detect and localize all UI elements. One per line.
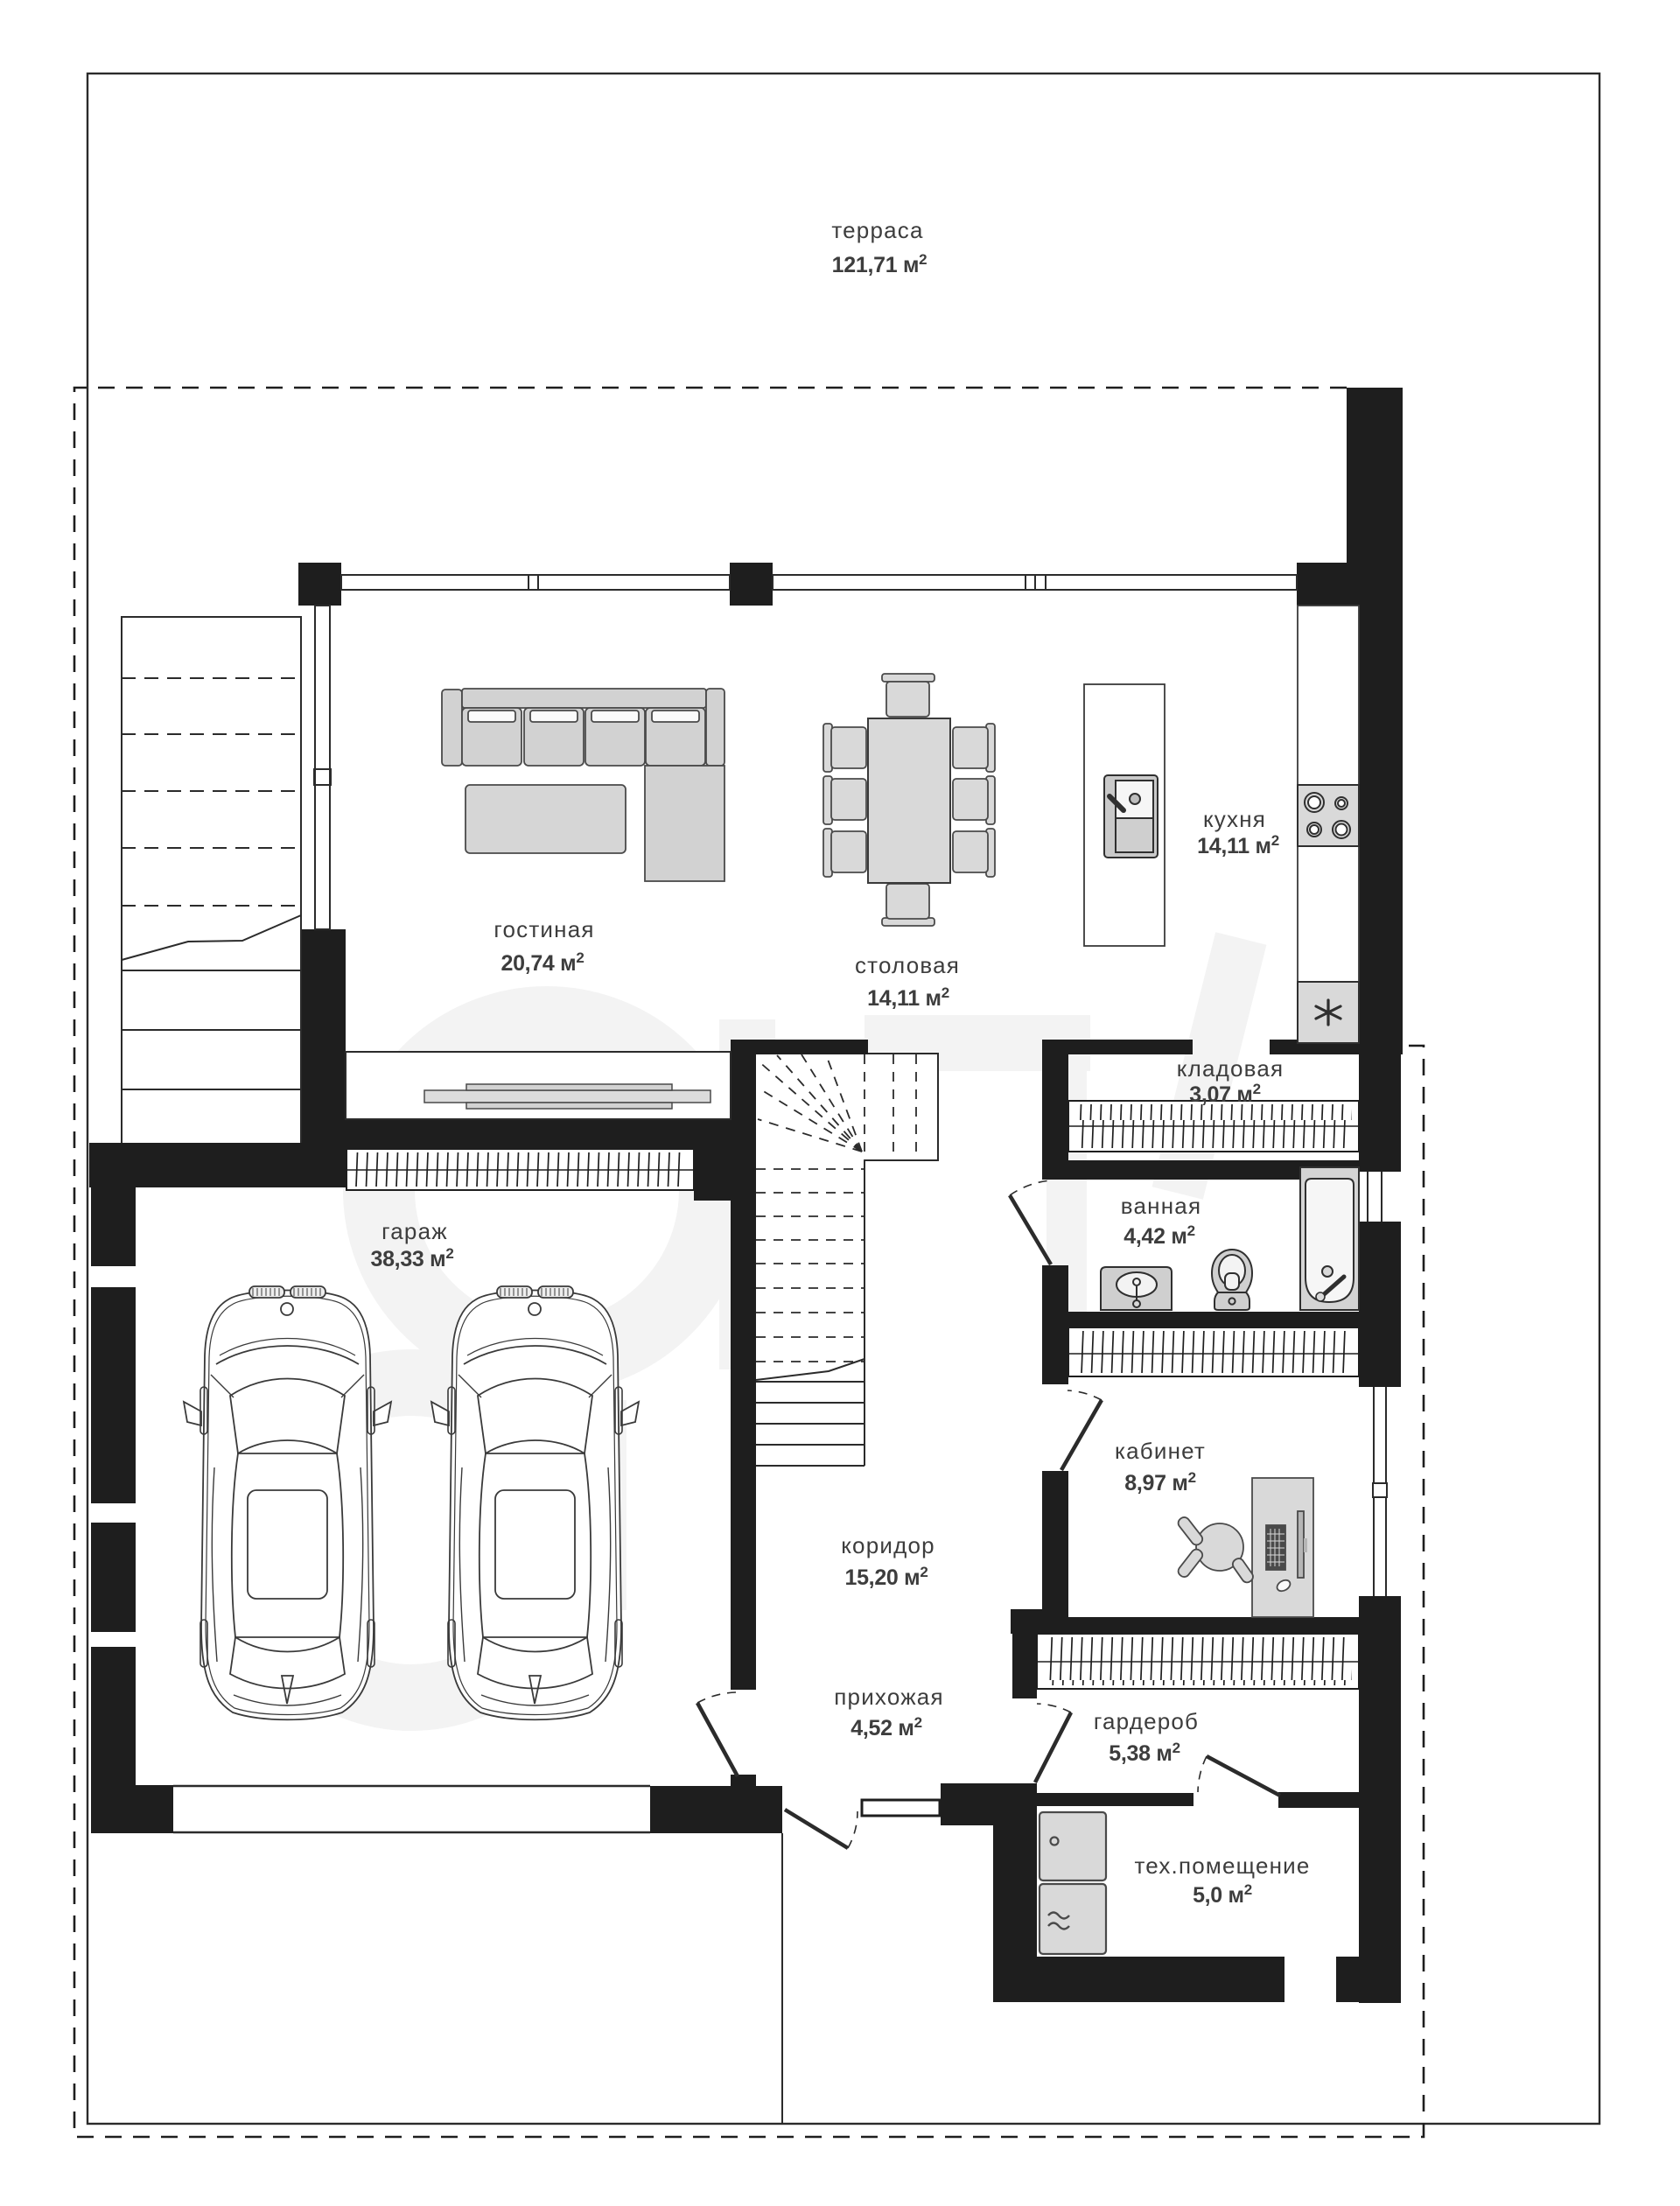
svg-text:4,42 м2: 4,42 м2 — [1123, 1222, 1194, 1249]
svg-text:столовая: столовая — [855, 952, 960, 978]
svg-text:тех.помещение: тех.помещение — [1134, 1852, 1310, 1879]
svg-text:4,52 м2: 4,52 м2 — [850, 1714, 921, 1740]
svg-text:кабинет: кабинет — [1115, 1438, 1206, 1464]
svg-text:прихожая: прихожая — [834, 1684, 943, 1710]
svg-text:5,0 м2: 5,0 м2 — [1193, 1881, 1252, 1908]
svg-text:14,11 м2: 14,11 м2 — [867, 984, 949, 1011]
svg-text:ванная: ванная — [1121, 1193, 1201, 1219]
svg-text:3,07 м2: 3,07 м2 — [1189, 1081, 1260, 1107]
svg-text:гардероб: гардероб — [1094, 1708, 1199, 1734]
svg-text:гостиная: гостиная — [493, 916, 594, 942]
svg-text:коридор: коридор — [841, 1532, 935, 1558]
svg-text:121,71 м2: 121,71 м2 — [832, 251, 927, 277]
svg-text:38,33 м2: 38,33 м2 — [370, 1245, 453, 1271]
svg-text:гараж: гараж — [381, 1218, 448, 1244]
svg-text:20,74 м2: 20,74 м2 — [500, 949, 584, 976]
svg-text:8,97 м2: 8,97 м2 — [1124, 1469, 1195, 1495]
svg-text:кладовая: кладовая — [1177, 1055, 1284, 1082]
svg-text:кухня: кухня — [1203, 806, 1266, 832]
svg-text:14,11 м2: 14,11 м2 — [1197, 832, 1279, 858]
svg-text:15,20 м2: 15,20 м2 — [844, 1564, 927, 1590]
svg-text:5,38 м2: 5,38 м2 — [1109, 1740, 1179, 1766]
svg-text:терраса: терраса — [831, 217, 923, 243]
